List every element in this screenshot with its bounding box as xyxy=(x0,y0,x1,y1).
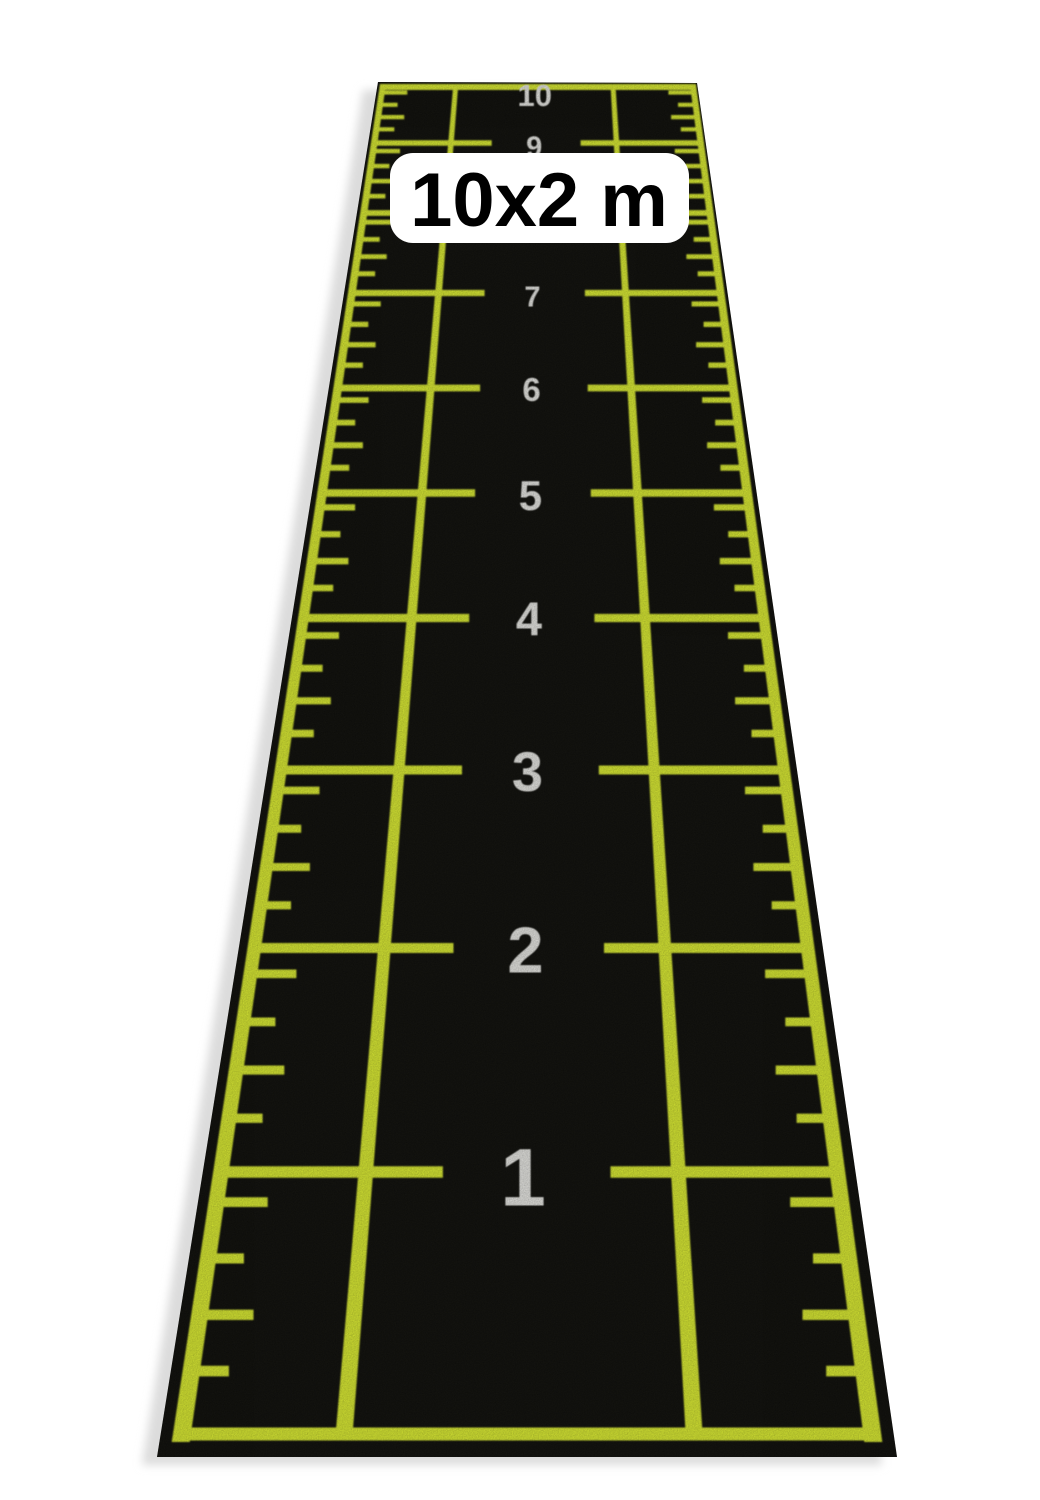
size-label-text: 10x2 m xyxy=(410,158,668,243)
product-photo: 12345678910 10x2 m xyxy=(0,0,1040,1500)
size-label-badge: 10x2 m xyxy=(390,153,689,243)
sprint-track-mat-image: 12345678910 10x2 m xyxy=(0,0,1040,1500)
